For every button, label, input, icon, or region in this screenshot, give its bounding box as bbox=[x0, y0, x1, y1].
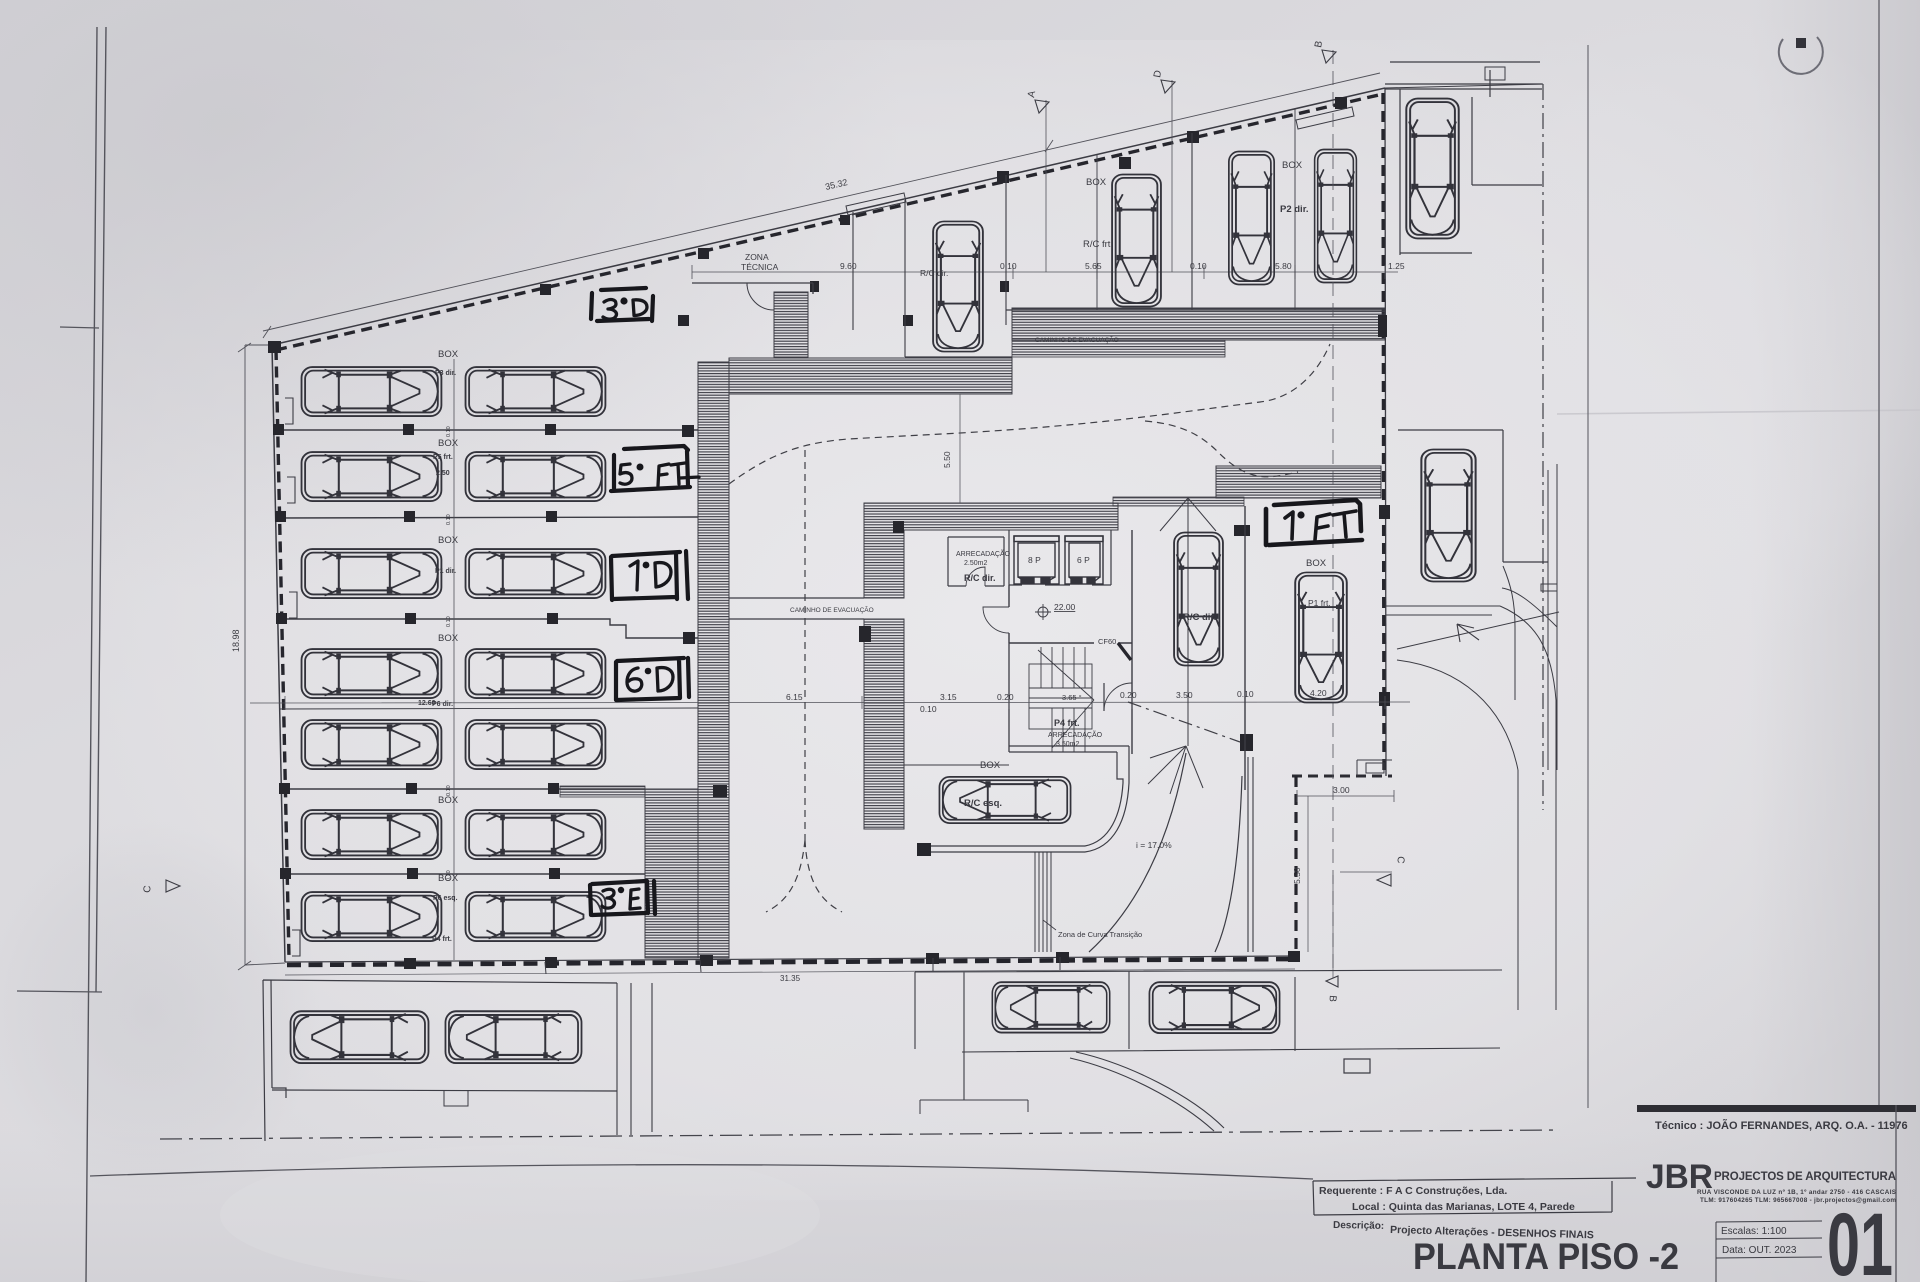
svg-text:0.10: 0.10 bbox=[446, 514, 452, 525]
svg-text:8 P: 8 P bbox=[1028, 555, 1041, 565]
svg-text:4.20: 4.20 bbox=[1310, 688, 1327, 698]
svg-text:Técnico : JOÃO FERNANDES, ARQ.: Técnico : JOÃO FERNANDES, ARQ. O.A. - 11… bbox=[1655, 1119, 1908, 1132]
svg-text:01: 01 bbox=[1827, 1194, 1893, 1282]
svg-text:C: C bbox=[142, 885, 154, 893]
svg-text:5.50: 5.50 bbox=[1292, 867, 1302, 884]
svg-text:BOX: BOX bbox=[438, 438, 459, 449]
svg-text:3.15: 3.15 bbox=[940, 692, 957, 702]
svg-text:12.60: 12.60 bbox=[418, 700, 436, 707]
svg-text:i = 17.0%: i = 17.0% bbox=[1136, 840, 1172, 850]
svg-text:Requerente : F A C Construçõe: Requerente : F A C Construções, Lda. bbox=[1319, 1185, 1507, 1197]
svg-text:C: C bbox=[1394, 856, 1406, 864]
svg-text:0.10: 0.10 bbox=[1000, 261, 1017, 271]
svg-text:CAMINHO DE EVACUAÇÃO: CAMINHO DE EVACUAÇÃO bbox=[1035, 335, 1119, 344]
svg-text:R/C frt: R/C frt bbox=[1083, 239, 1111, 250]
svg-text:BOX: BOX bbox=[1306, 558, 1327, 569]
svg-text:P4 frt.: P4 frt. bbox=[1054, 718, 1080, 728]
svg-text:0.20: 0.20 bbox=[997, 692, 1014, 702]
svg-text:0.10: 0.10 bbox=[446, 616, 452, 627]
svg-text:5.65: 5.65 bbox=[1085, 261, 1102, 271]
svg-text:2.50m2: 2.50m2 bbox=[964, 560, 987, 567]
svg-text:PLANTA PISO -2: PLANTA PISO -2 bbox=[1413, 1236, 1679, 1277]
svg-text:3.00: 3.00 bbox=[1333, 785, 1350, 795]
svg-text:3.65 °: 3.65 ° bbox=[1062, 693, 1082, 702]
svg-text:0.10: 0.10 bbox=[446, 785, 452, 796]
svg-text:1.25: 1.25 bbox=[1388, 261, 1405, 271]
svg-text:0.10: 0.10 bbox=[920, 704, 937, 714]
svg-text:CAMINHO DE EVACUAÇÃO: CAMINHO DE EVACUAÇÃO bbox=[790, 605, 874, 614]
svg-text:P6 esq.: P6 esq. bbox=[433, 895, 458, 902]
svg-text:CF60: CF60 bbox=[1098, 637, 1116, 646]
svg-text:ARRECADAÇÃO: ARRECADAÇÃO bbox=[1048, 730, 1103, 739]
svg-text:Escalas: 1:100: Escalas: 1:100 bbox=[1721, 1226, 1787, 1237]
svg-text:5.80: 5.80 bbox=[1275, 261, 1292, 271]
svg-text:P1 frt.: P1 frt. bbox=[1308, 598, 1331, 608]
svg-text:TÉCNICA: TÉCNICA bbox=[741, 262, 779, 272]
svg-text:6.15: 6.15 bbox=[786, 692, 803, 702]
svg-text:22.00: 22.00 bbox=[1054, 602, 1076, 612]
svg-text:3.50: 3.50 bbox=[1176, 690, 1193, 700]
svg-text:Data: OUT. 2023: Data: OUT. 2023 bbox=[1722, 1245, 1797, 1256]
svg-text:BOX: BOX bbox=[980, 760, 1001, 771]
svg-text:BOX: BOX bbox=[438, 349, 459, 360]
svg-text:2.50: 2.50 bbox=[436, 470, 450, 477]
svg-text:ARRECADAÇÃO: ARRECADAÇÃO bbox=[956, 549, 1011, 558]
svg-text:6 P: 6 P bbox=[1077, 555, 1090, 565]
svg-text:BOX: BOX bbox=[438, 535, 459, 546]
svg-text:5.50: 5.50 bbox=[942, 451, 952, 468]
svg-text:R/C esq.: R/C esq. bbox=[964, 798, 1002, 809]
svg-text:R/C dir.: R/C dir. bbox=[1183, 612, 1216, 623]
svg-text:P5 frt.: P5 frt. bbox=[433, 454, 453, 461]
svg-text:9.60: 9.60 bbox=[840, 261, 857, 271]
svg-text:0.20: 0.20 bbox=[1120, 690, 1137, 700]
svg-text:P1 dir.: P1 dir. bbox=[435, 568, 456, 575]
svg-text:Zona de Curva Transição: Zona de Curva Transição bbox=[1058, 930, 1142, 939]
svg-text:R/C dir.: R/C dir. bbox=[964, 573, 996, 583]
svg-text:BOX: BOX bbox=[1086, 177, 1107, 188]
svg-text:18.98: 18.98 bbox=[231, 629, 241, 652]
svg-text:3.50m2: 3.50m2 bbox=[1056, 741, 1079, 748]
svg-text:P2 dir.: P2 dir. bbox=[1280, 204, 1309, 215]
svg-text:0.10: 0.10 bbox=[446, 870, 452, 881]
svg-text:BOX: BOX bbox=[438, 633, 459, 644]
svg-text:BOX: BOX bbox=[1282, 160, 1303, 171]
svg-text:Descrição:: Descrição: bbox=[1333, 1220, 1384, 1232]
svg-text:P3 dir.: P3 dir. bbox=[435, 370, 456, 377]
svg-text:31.35: 31.35 bbox=[780, 974, 801, 983]
svg-text:R/C dir.: R/C dir. bbox=[920, 268, 948, 278]
svg-text:Local : Quinta das Marianas, L: Local : Quinta das Marianas, LOTE 4, Par… bbox=[1352, 1201, 1575, 1213]
svg-text:0.10: 0.10 bbox=[446, 426, 452, 437]
svg-text:PROJECTOS DE ARQUITECTURA: PROJECTOS DE ARQUITECTURA bbox=[1714, 1171, 1896, 1183]
svg-text:ZONA: ZONA bbox=[745, 252, 769, 262]
svg-text:B: B bbox=[1326, 995, 1338, 1003]
svg-text:P4 frt.: P4 frt. bbox=[432, 936, 452, 943]
